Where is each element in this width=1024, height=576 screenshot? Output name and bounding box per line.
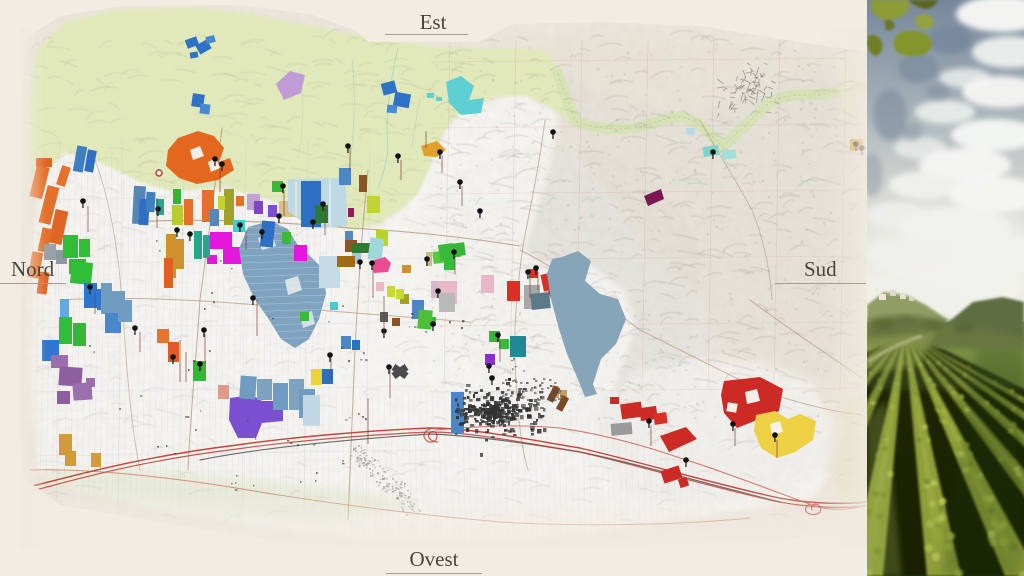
svg-text:Nord: Nord — [11, 257, 55, 281]
svg-text:Sud: Sud — [804, 257, 837, 281]
svg-text:Est: Est — [420, 10, 447, 34]
svg-text:Ovest: Ovest — [410, 547, 459, 571]
